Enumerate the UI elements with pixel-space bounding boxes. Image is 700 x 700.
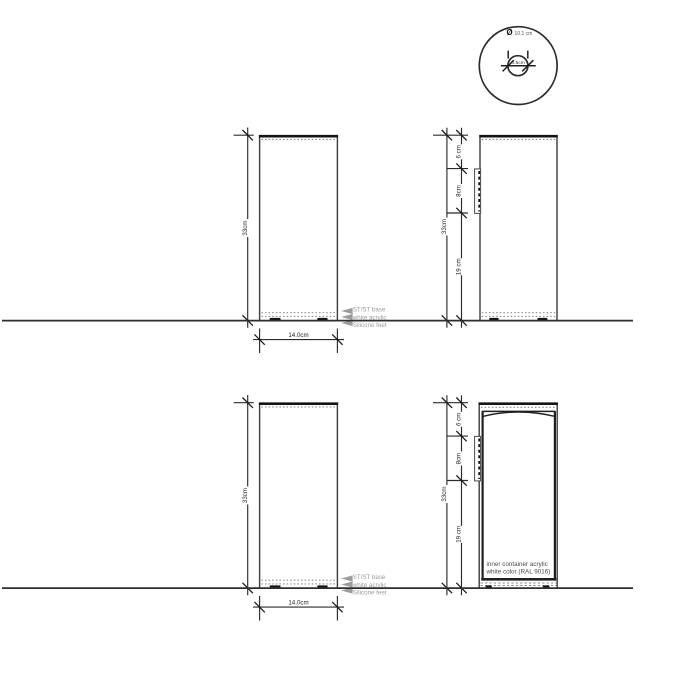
svg-text:inner container acrylic: inner container acrylic (487, 561, 548, 568)
svg-text:white color (RAL 9016): white color (RAL 9016) (486, 568, 551, 575)
svg-text:14.0cm: 14.0cm (288, 332, 308, 339)
svg-text:33cm: 33cm (242, 220, 249, 235)
svg-text:14.0cm: 14.0cm (288, 599, 308, 606)
svg-text:19 cm: 19 cm (455, 526, 462, 543)
svg-text:8cm: 8cm (455, 185, 462, 197)
svg-text:ST/ST base: ST/ST base (353, 307, 386, 314)
svg-text:6 cm: 6 cm (455, 145, 462, 158)
svg-text:19 cm: 19 cm (455, 258, 462, 275)
svg-text:6 cm: 6 cm (455, 413, 462, 426)
svg-text:8cm: 8cm (455, 453, 462, 465)
svg-text:33cm: 33cm (242, 488, 249, 503)
svg-text:33cm: 33cm (441, 219, 448, 234)
svg-text:ST/ST base: ST/ST base (353, 574, 386, 581)
svg-text:Silicone feet: Silicone feet (353, 589, 387, 596)
svg-text:4.5cm: 4.5cm (512, 60, 525, 66)
svg-text:Silicone feet: Silicone feet (353, 322, 387, 329)
svg-text:33cm: 33cm (441, 486, 448, 501)
